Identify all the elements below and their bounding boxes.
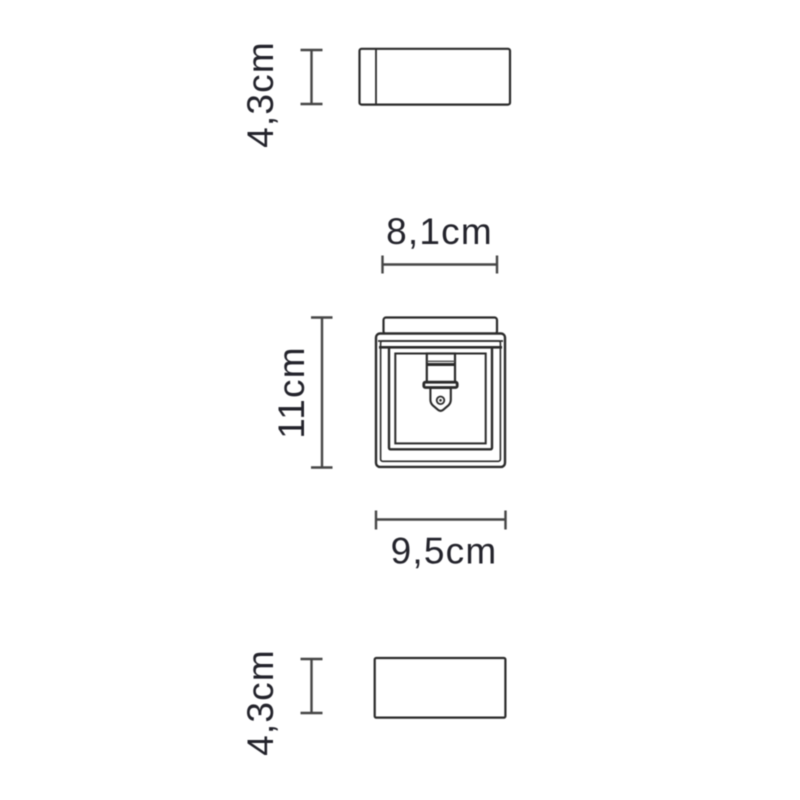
svg-text:4,3cm: 4,3cm xyxy=(240,41,281,148)
svg-text:4,3cm: 4,3cm xyxy=(240,649,281,756)
svg-text:9,5cm: 9,5cm xyxy=(391,531,498,572)
svg-text:11cm: 11cm xyxy=(271,346,312,439)
svg-text:8,1cm: 8,1cm xyxy=(386,211,493,252)
